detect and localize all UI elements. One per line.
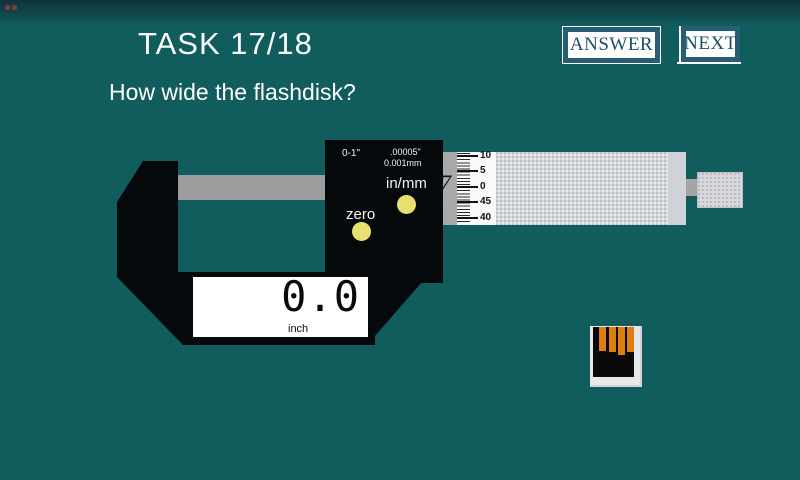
top-gradient-strip (0, 0, 800, 26)
usb-pin (609, 327, 616, 352)
scale-major-tick (457, 186, 478, 188)
inmm-toggle-button[interactable] (397, 195, 416, 214)
zero-button[interactable] (352, 222, 371, 241)
usb-connector-cavity (593, 327, 634, 377)
usb-pin (627, 327, 634, 352)
answer-button[interactable]: ANSWER (562, 26, 661, 64)
lcd-display: 0.0 inch (193, 277, 368, 337)
scale-major-tick (457, 155, 478, 157)
ratchet-knob[interactable] (697, 172, 743, 208)
page-title: TASK 17/18 (138, 26, 538, 62)
scale-minor-ticks (457, 153, 470, 224)
flashdisk[interactable] (590, 326, 642, 387)
inmm-label: in/mm (386, 175, 427, 192)
question-text: How wide the flashdisk? (109, 79, 509, 106)
next-button-underline (677, 62, 741, 64)
debug-marker (12, 5, 17, 10)
debug-marker (5, 5, 10, 10)
ratchet-connector (686, 179, 697, 196)
thimble-knurled-barrel[interactable] (496, 152, 668, 225)
usb-pin (599, 327, 606, 351)
scale-major-tick (457, 201, 478, 203)
usb-pin (618, 327, 625, 355)
scale-major-tick (457, 217, 478, 219)
resolution-inch-label: .00005" (390, 147, 421, 157)
app-screen: TASK 17/18 How wide the flashdisk? ANSWE… (0, 0, 800, 480)
range-label: 0-1" (342, 148, 360, 159)
answer-button-label: ANSWER (568, 32, 655, 58)
resolution-mm-label: 0.001mm (384, 158, 422, 168)
zero-label: zero (346, 206, 375, 223)
lcd-unit-label: inch (288, 323, 308, 335)
thimble-barrel-end (668, 152, 686, 225)
next-button[interactable]: NEXT (681, 26, 740, 62)
next-button-label: NEXT (686, 31, 735, 57)
scale-major-tick (457, 170, 478, 172)
sleeve-index-zero: 0 (437, 200, 443, 212)
thimble-scale: 10 5 0 45 40 (457, 152, 496, 225)
lcd-value: 0.0 (281, 272, 360, 321)
sleeve-index-digit: 7 (440, 172, 451, 194)
